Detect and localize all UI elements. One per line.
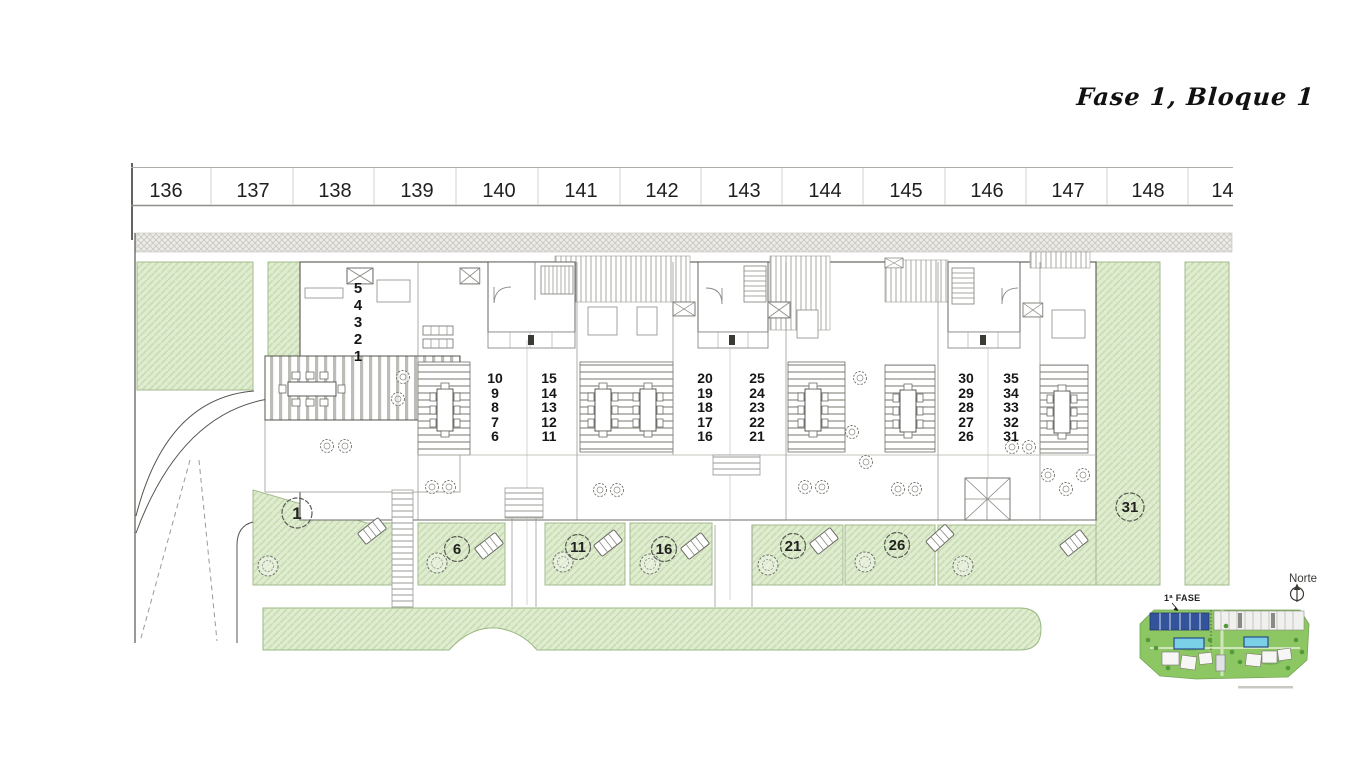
cross-stair	[965, 478, 1010, 520]
unit-number: 28	[958, 399, 974, 415]
unit-stack-30-26: 30 29 28 27 26	[958, 370, 974, 444]
site-plan-drawing: Fase 1, Bloque 1 136 137 138 139 140 141…	[0, 0, 1366, 768]
location-minimap: 1ª FASE	[1140, 593, 1309, 689]
unit-number: 11	[542, 428, 557, 444]
unit-stack-20-16: 20 19 18 17 16	[697, 370, 713, 444]
skylight-icon	[885, 258, 903, 268]
ruler-number: 141	[564, 180, 597, 202]
unit-number: 23	[749, 399, 765, 415]
plan-title: Fase 1, Bloque 1	[1075, 82, 1316, 111]
unit-stack-15-11: 15 14 13 12 11	[541, 370, 557, 444]
ruler-number: 144	[808, 180, 841, 202]
ruler-number: 139	[400, 180, 433, 202]
unit-stack-25-21: 25 24 23 22 21	[749, 370, 765, 444]
garden-bottom-strip	[263, 608, 1041, 650]
garden-right-edge	[1185, 262, 1229, 585]
ruler-number: 142	[645, 180, 678, 202]
unit-number: 3	[354, 314, 362, 331]
unit-number: 26	[958, 428, 974, 444]
road-dashed-line	[141, 460, 190, 638]
plot-badge-label: 31	[1122, 499, 1139, 516]
stair-core-3	[948, 262, 1020, 348]
garden-upper-left	[137, 262, 253, 390]
plot-number-ruler: 136 137 138 139 140 141 142 143 144 145 …	[131, 163, 1245, 240]
minimap-pool	[1244, 637, 1268, 647]
unit-number: 33	[1003, 399, 1019, 415]
ruler-number: 147	[1051, 180, 1084, 202]
plot-badge-label: 1	[292, 504, 301, 523]
road-dashed-line	[199, 460, 217, 641]
skylight-icon	[768, 302, 790, 318]
garden-upper-left-2	[268, 262, 300, 356]
unit-number: 8	[491, 399, 499, 415]
site-plan-page: Fase 1, Bloque 1 136 137 138 139 140 141…	[0, 0, 1366, 768]
ruler-number: 148	[1131, 180, 1164, 202]
unit-number: 18	[697, 399, 713, 415]
stair-core-1	[488, 262, 575, 348]
ruler-number: 138	[318, 180, 351, 202]
stair-core-2	[698, 262, 768, 348]
unit-number: 2	[354, 331, 362, 348]
ruler-number: 136	[149, 180, 182, 202]
ruler-number: 146	[970, 180, 1003, 202]
garden-plot-31	[1096, 262, 1160, 585]
skylight-icon	[460, 268, 480, 284]
garden-plot-6	[418, 523, 505, 585]
ruler-number: 143	[727, 180, 760, 202]
ruler-number: 149	[1211, 180, 1244, 202]
unit-number: 21	[749, 428, 765, 444]
unit-number: 13	[541, 399, 557, 415]
plot-badge-label: 6	[453, 541, 461, 558]
unit-number: 16	[697, 428, 713, 444]
unit-number: 20	[697, 370, 713, 386]
unit-number: 4	[354, 297, 363, 314]
unit-number: 5	[354, 280, 362, 297]
north-compass: Norte	[1289, 573, 1317, 602]
skylight-icon	[1023, 303, 1043, 317]
phase-label: 1ª FASE	[1164, 593, 1200, 603]
unit-number: 25	[749, 370, 765, 386]
ruler-number: 137	[236, 180, 269, 202]
unit-stack-5-1: 5 4 3 2 1	[354, 280, 363, 365]
plot-badge-label: 21	[785, 538, 802, 555]
ruler-number: 145	[889, 180, 922, 202]
minimap-phase1-block	[1150, 613, 1209, 630]
plot-badge-label: 11	[570, 539, 586, 556]
skylight-icon	[673, 302, 695, 316]
unit-number: 1	[354, 348, 362, 365]
unit-number: 15	[541, 370, 557, 386]
tree-icon	[392, 393, 405, 406]
north-compass-icon	[1291, 584, 1304, 603]
minimap-pool	[1174, 638, 1204, 649]
unit-stack-35-31: 35 34 33 32 31	[1003, 370, 1019, 444]
unit-number: 6	[491, 428, 499, 444]
plot-badge-label: 26	[889, 537, 906, 554]
boundary-hatch-strip	[135, 233, 1232, 252]
minimap-caption-line	[1238, 686, 1293, 689]
unit-number: 31	[1003, 428, 1019, 444]
ruler-number: 140	[482, 180, 515, 202]
dining-table	[288, 382, 336, 396]
plot-badge-label: 16	[656, 541, 673, 558]
unit-number: 35	[1003, 370, 1019, 386]
tree-icon	[397, 371, 410, 384]
unit-number: 30	[958, 370, 974, 386]
unit-number: 10	[487, 370, 503, 386]
north-label: Norte	[1289, 573, 1317, 585]
